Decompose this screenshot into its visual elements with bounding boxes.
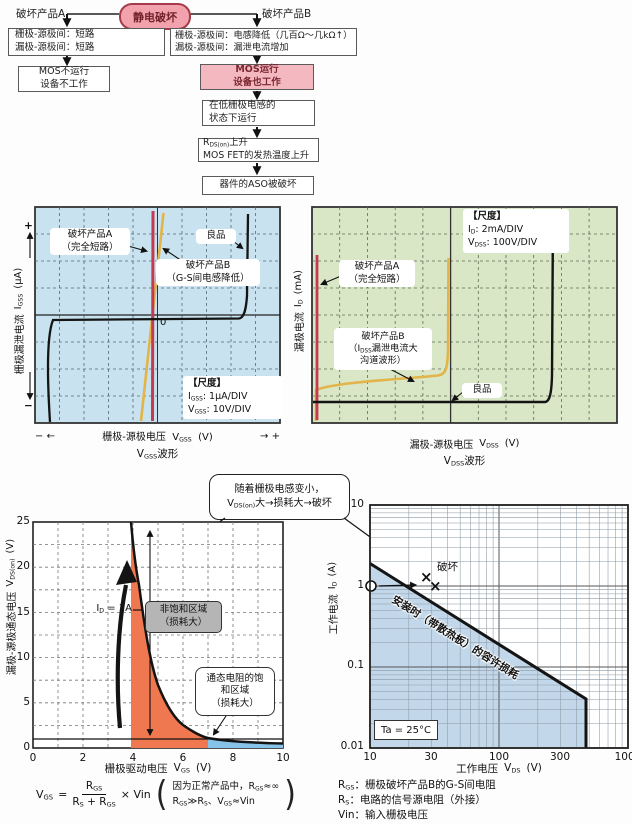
vgs-formula: VGS = RGS RS + RGS × Vin ( 因为正常产品中，RGS≈∞…	[36, 777, 296, 812]
aso-operating-point	[366, 581, 376, 591]
dss-waveform-caption: VDSS波形	[312, 453, 617, 468]
branch-a-title: 破坏产品A	[16, 6, 65, 21]
formula-note: 因为正常产品中，RGS≈∞ RGS≫RS、VGS≈Vin	[173, 780, 280, 809]
aso-y-axis-label: 工作电流 ID (A)	[325, 518, 340, 678]
paren-right: )	[284, 774, 296, 814]
dss-label-product-a: 破坏产品A （完全短路）	[339, 260, 415, 287]
box-a2-mos-not-running: MOS不运行 设备不工作	[18, 66, 110, 92]
root-node-label: 静电破坏	[133, 9, 177, 25]
gss-x-axis-label: − ← 栅极-源极电压 VGSS (V) → +	[35, 428, 280, 444]
aso-log-grid	[370, 505, 628, 748]
aso-breakdown-x2: ×	[429, 579, 442, 594]
box-b4-rdson-rise: RDS(on)上升 MOS FET的发热温度上升	[198, 138, 319, 162]
aso-ta-box: Ta = 25°C	[374, 720, 438, 740]
formula-fraction: RGS RS + RGS	[72, 780, 115, 808]
gss-minus-sign: −	[24, 400, 33, 412]
vgs-id-label: ID = 1A	[82, 603, 132, 614]
gss-zero-label: 0	[160, 317, 166, 328]
gss-plus-sign: +	[24, 220, 33, 232]
gss-y-axis-label: 栅极漏泄电流 IGSS (μA)	[11, 252, 26, 390]
vgs-label-saturated-region: 通态电阻的饱 和区域 （损耗大）	[195, 667, 275, 716]
box-b1-resistance-drop: 栅极-源极间：电感降低（几百Ω～几kΩ↑） 漏极-源极间：漏泄电流增加	[170, 28, 357, 56]
dss-y-axis-label: 漏极电流 ID (mA)	[291, 232, 306, 390]
vgs-label-unsaturated-region: 非饱和区域 （损耗大）	[145, 601, 222, 633]
box-b3-low-resistance-state: 在低栅极电感的 状态下运行	[202, 100, 315, 126]
vgs-y-axis-label: 漏极-源极通态电压 VDS(on) (V)	[3, 500, 18, 714]
gss-label-product-b: 破坏产品B （G-S间电感降低）	[156, 259, 260, 286]
gss-trace-product-a	[153, 211, 154, 421]
def-rgs: RGS：栅极破坏产品B的G-S间电阻	[338, 778, 496, 793]
def-rs: RS：电路的信号源电阻（外接）	[338, 793, 496, 808]
dss-label-good: 良品	[462, 383, 502, 398]
box-b5-aso-destroyed: 器件的ASO被破坏	[202, 176, 314, 195]
root-node-esd-breakdown: 静电破坏	[119, 3, 191, 30]
symbol-definitions: RGS：栅极破坏产品B的G-S间电阻 RS：电路的信号源电阻（外接） Vin：输…	[338, 778, 496, 824]
box-b2-mos-running: MOS运行 设备也工作	[200, 64, 314, 90]
gss-label-good: 良品	[196, 229, 236, 244]
branch-b-title: 破坏产品B	[262, 6, 311, 21]
page: { "colors": { "osc_blue_bg": "#c9e2ef", …	[0, 0, 632, 820]
gss-scale-box: 【尺度】 IGSS: 1μA/DIV VGSS: 10V/DIV	[183, 376, 283, 419]
dss-x-axis-label: 漏极-源极电压 VDSS (V)	[312, 436, 617, 451]
gss-waveform-caption: VGSS波形	[35, 446, 280, 461]
aso-ytick: 10	[330, 498, 364, 510]
dss-label-product-b: 破坏产品B （IDSS漏泄电流大 沟道波形）	[334, 328, 432, 370]
gss-label-product-a: 破坏产品A （完全短路）	[50, 228, 130, 255]
aso-destroy-label: 破坏	[437, 559, 458, 574]
box-a1-short-circuit: 栅极-源极间：短路 漏极-源极间：短路	[8, 28, 165, 56]
paren-left: (	[156, 774, 168, 814]
dss-scale-box: 【尺度】 ID: 2mA/DIV VDSS: 100V/DIV	[463, 209, 569, 253]
def-vin: Vin：输入栅极电压	[338, 808, 496, 823]
aso-x-axis-label: 工作电压 VDS (V)	[370, 760, 628, 776]
